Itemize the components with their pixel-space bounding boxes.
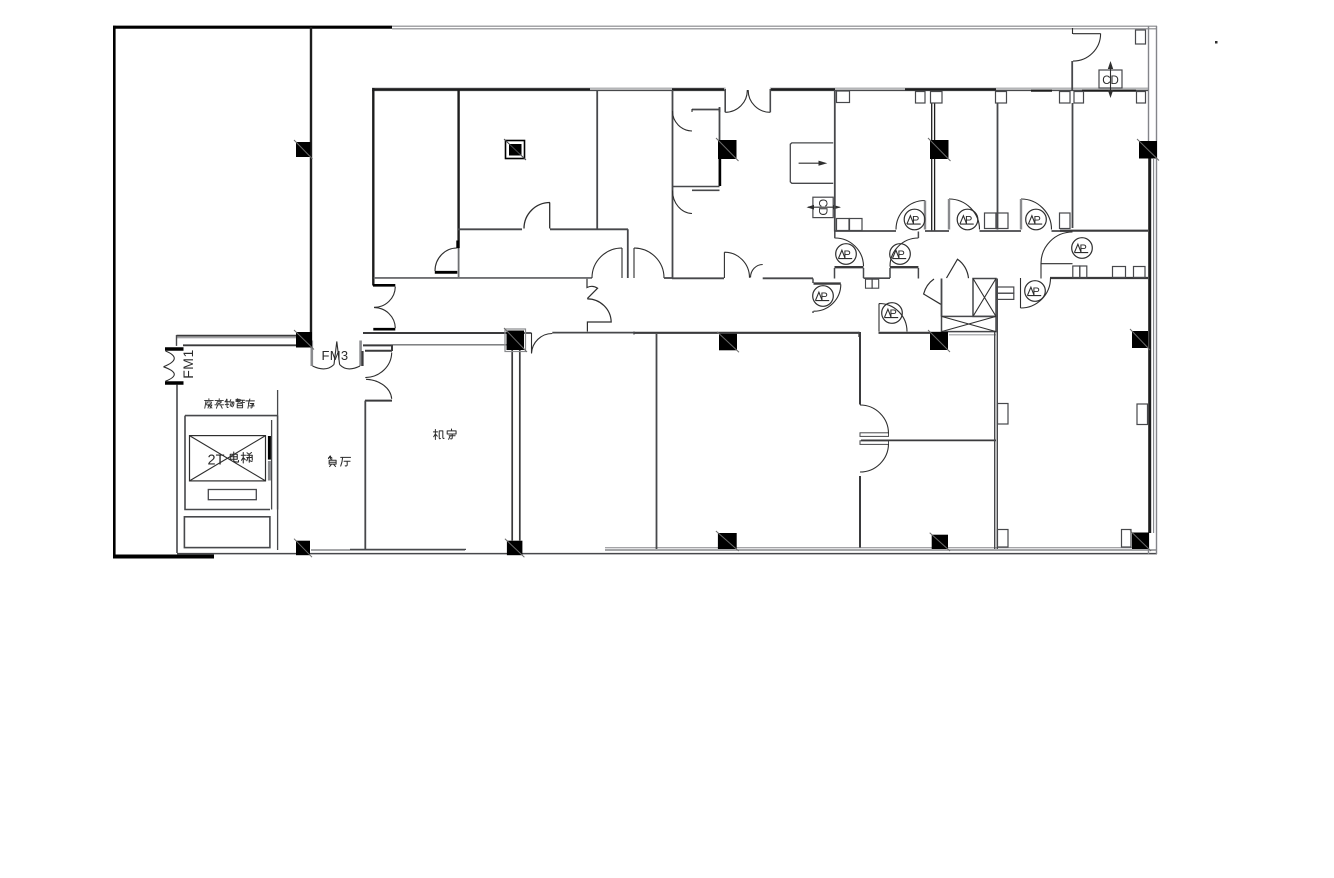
svg-text:P: P (821, 291, 828, 303)
svg-text:FM3: FM3 (322, 348, 349, 363)
svg-text:P: P (844, 249, 851, 261)
svg-text:P: P (1033, 286, 1040, 298)
svg-text:P: P (890, 308, 897, 320)
svg-text:P: P (898, 249, 905, 261)
svg-text:P: P (965, 215, 972, 227)
svg-text:FM1: FM1 (180, 349, 196, 379)
svg-text:P: P (1034, 215, 1041, 227)
svg-text:2T: 2T (208, 453, 225, 469)
svg-text:P: P (1080, 243, 1087, 255)
svg-text:P: P (912, 215, 919, 227)
